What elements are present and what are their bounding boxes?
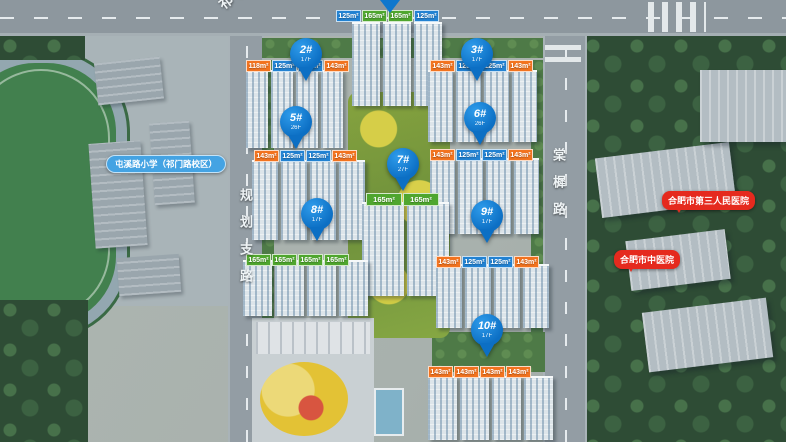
unit-size-chip: 143m² [428, 366, 453, 378]
unit-size-chip: 125m² [336, 10, 361, 22]
unit-size-chip: 143m² [508, 60, 533, 72]
pin-tail [479, 343, 495, 357]
building-pin-partial-tip[interactable] [380, 0, 400, 13]
unit-size-chip: 143m² [254, 150, 279, 162]
unit-size-chip: 143m² [514, 256, 539, 268]
pin-tail [479, 229, 495, 243]
tower-cluster [243, 260, 368, 316]
unit-size-chip: 165m² [298, 254, 323, 266]
tower-block [524, 376, 553, 440]
pin-bubble: 5#26F [280, 106, 312, 138]
pin-bubble: 8#17F [301, 198, 333, 230]
pool [374, 388, 404, 436]
aerial-site-plan: 祁门路 规划支路 棠樨路 125m²165m²165m²125m²118m²12… [0, 0, 786, 442]
unit-size-chip: 143m² [430, 60, 455, 72]
poi-hospital-tcm-label[interactable]: 合肥市中医院 [614, 250, 680, 269]
unit-size-row: 143m²125m²125m²143m² [436, 256, 539, 268]
tower-block [339, 260, 368, 316]
pin-building-number: 8# [311, 205, 323, 216]
building-pin-6[interactable]: 6#26F [464, 102, 496, 145]
building-pin-7[interactable]: 7#27F [387, 148, 419, 191]
pin-building-number: 9# [481, 207, 493, 218]
unit-size-chip: 143m² [430, 149, 455, 161]
tower-block [383, 22, 411, 106]
pin-building-number: 2# [300, 45, 312, 56]
unit-size-chip: 143m² [332, 150, 357, 162]
pin-tail [309, 227, 325, 241]
tower-block [523, 264, 549, 328]
unit-size-chip: 143m² [506, 366, 531, 378]
unit-size-chip: 125m² [488, 256, 513, 268]
pin-floor-count: 17F [482, 219, 492, 225]
pin-floor-count: 17F [301, 57, 311, 63]
building-pin-10[interactable]: 10#17F [471, 314, 503, 357]
school-building [117, 254, 181, 296]
pin-tail [395, 177, 411, 191]
unit-size-chip: 118m² [246, 60, 271, 72]
building-pin-2[interactable]: 2#17F [290, 38, 322, 81]
building-pin-5[interactable]: 5#26F [280, 106, 312, 149]
pin-building-number: 3# [471, 45, 483, 56]
tower-block [428, 376, 457, 440]
unit-size-chip: 125m² [456, 149, 481, 161]
tower-block [460, 376, 489, 440]
unit-size-row: 143m²125m²125m²143m² [254, 150, 357, 162]
unit-size-chip: 165m² [366, 193, 402, 206]
tower-block [321, 70, 343, 148]
unit-size-chip: 165m² [324, 254, 349, 266]
tower-cluster [428, 376, 553, 440]
trees [0, 300, 88, 442]
road-name-right: 棠樨路 [549, 148, 568, 229]
pin-bubble: 7#27F [387, 148, 419, 180]
pin-floor-count: 17F [482, 333, 492, 339]
pin-building-number: 5# [290, 113, 302, 124]
building-pin-9[interactable]: 9#17F [471, 200, 503, 243]
tower-block [275, 260, 304, 316]
tower-block [252, 160, 278, 240]
unit-size-chip: 165m² [403, 193, 439, 206]
crosswalk [648, 2, 706, 32]
poi-school-label[interactable]: 屯溪路小学（祁门路校区） [106, 155, 226, 173]
unit-size-chip: 143m² [436, 256, 461, 268]
crosswalk [545, 40, 581, 62]
pin-floor-count: 27F [398, 167, 408, 173]
pin-bubble: 9#17F [471, 200, 503, 232]
tower-block [246, 70, 268, 148]
tower-block [307, 260, 336, 316]
pin-bubble: 10#17F [471, 314, 503, 346]
pin-floor-count: 17F [472, 57, 482, 63]
unit-size-row: 165m²165m²165m²165m² [246, 254, 349, 266]
unit-size-chip: 143m² [324, 60, 349, 72]
tower-block [362, 202, 404, 296]
pin-bubble: 6#26F [464, 102, 496, 134]
tower-block [514, 158, 539, 234]
unit-size-chip: 125m² [306, 150, 331, 162]
tower-block [512, 70, 537, 142]
pin-tail [298, 67, 314, 81]
unit-size-chip: 125m² [482, 149, 507, 161]
pin-building-number: 6# [474, 109, 486, 120]
hospital-building [700, 70, 786, 142]
kindergarten-playground [260, 362, 348, 436]
school-building [94, 57, 164, 106]
pin-tail [469, 67, 485, 81]
tower-block [352, 22, 380, 106]
tower-block [492, 376, 521, 440]
pin-floor-count: 26F [291, 125, 301, 131]
pin-bubble: 3#17F [461, 38, 493, 70]
unit-size-chip: 143m² [480, 366, 505, 378]
tower-block [436, 264, 462, 328]
unit-size-row: 143m²143m²143m²143m² [428, 366, 531, 378]
unit-size-chip: 125m² [462, 256, 487, 268]
pin-tail [288, 135, 304, 149]
pin-building-number: 7# [397, 155, 409, 166]
building-pin-3[interactable]: 3#17F [461, 38, 493, 81]
unit-size-chip: 143m² [454, 366, 479, 378]
unit-size-row: 165m²165m² [366, 193, 439, 206]
unit-size-chip: 165m² [272, 254, 297, 266]
unit-size-chip: 125m² [280, 150, 305, 162]
kindergarten-roof [256, 322, 370, 354]
unit-size-chip: 143m² [508, 149, 533, 161]
unit-size-row: 143m²125m²125m²143m² [430, 149, 533, 161]
pin-floor-count: 26F [475, 121, 485, 127]
poi-hospital-third-label[interactable]: 合肥市第三人民医院 [662, 191, 755, 210]
pin-bubble: 2#17F [290, 38, 322, 70]
unit-size-chip: 125m² [414, 10, 439, 22]
trees [0, 36, 85, 60]
building-pin-8[interactable]: 8#17F [301, 198, 333, 241]
pin-floor-count: 17F [312, 217, 322, 223]
pin-building-number: 10# [478, 321, 496, 332]
tower-block [428, 70, 453, 142]
pin-tail [472, 131, 488, 145]
road-name-left: 规划支路 [236, 188, 255, 296]
